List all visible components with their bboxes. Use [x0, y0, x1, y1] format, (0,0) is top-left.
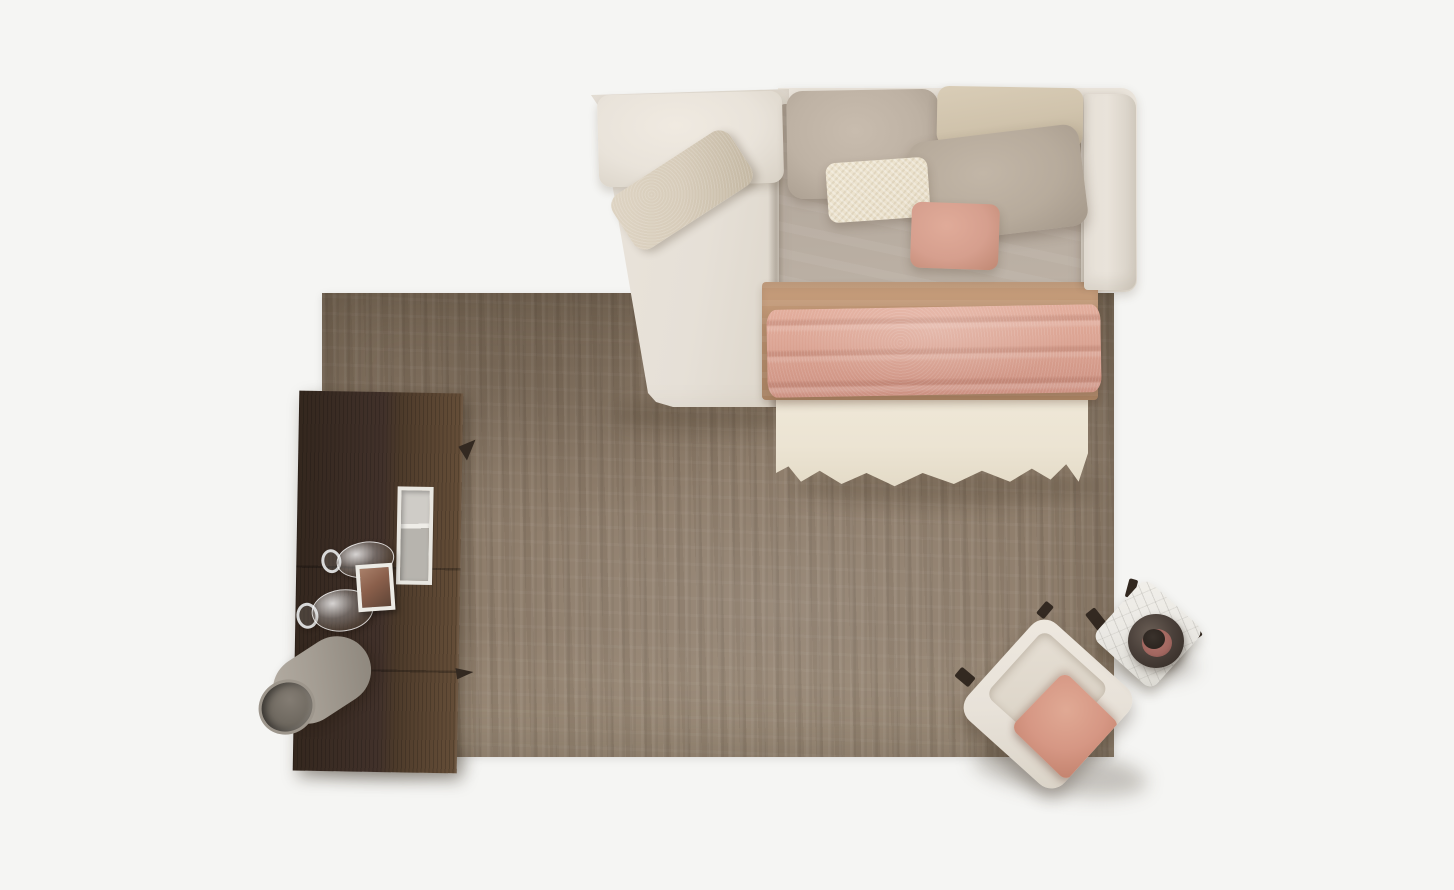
pink-throw [766, 304, 1101, 398]
right-armrest [1084, 94, 1136, 290]
photo-frame [355, 563, 395, 612]
sofa-bed [585, 85, 1145, 505]
decor-bowl-hole [1143, 629, 1165, 649]
cabinet-display-niche [396, 486, 434, 585]
pillow-pink [910, 201, 1000, 270]
scene-canvas [0, 0, 1454, 890]
foot-sheet [776, 385, 1088, 495]
